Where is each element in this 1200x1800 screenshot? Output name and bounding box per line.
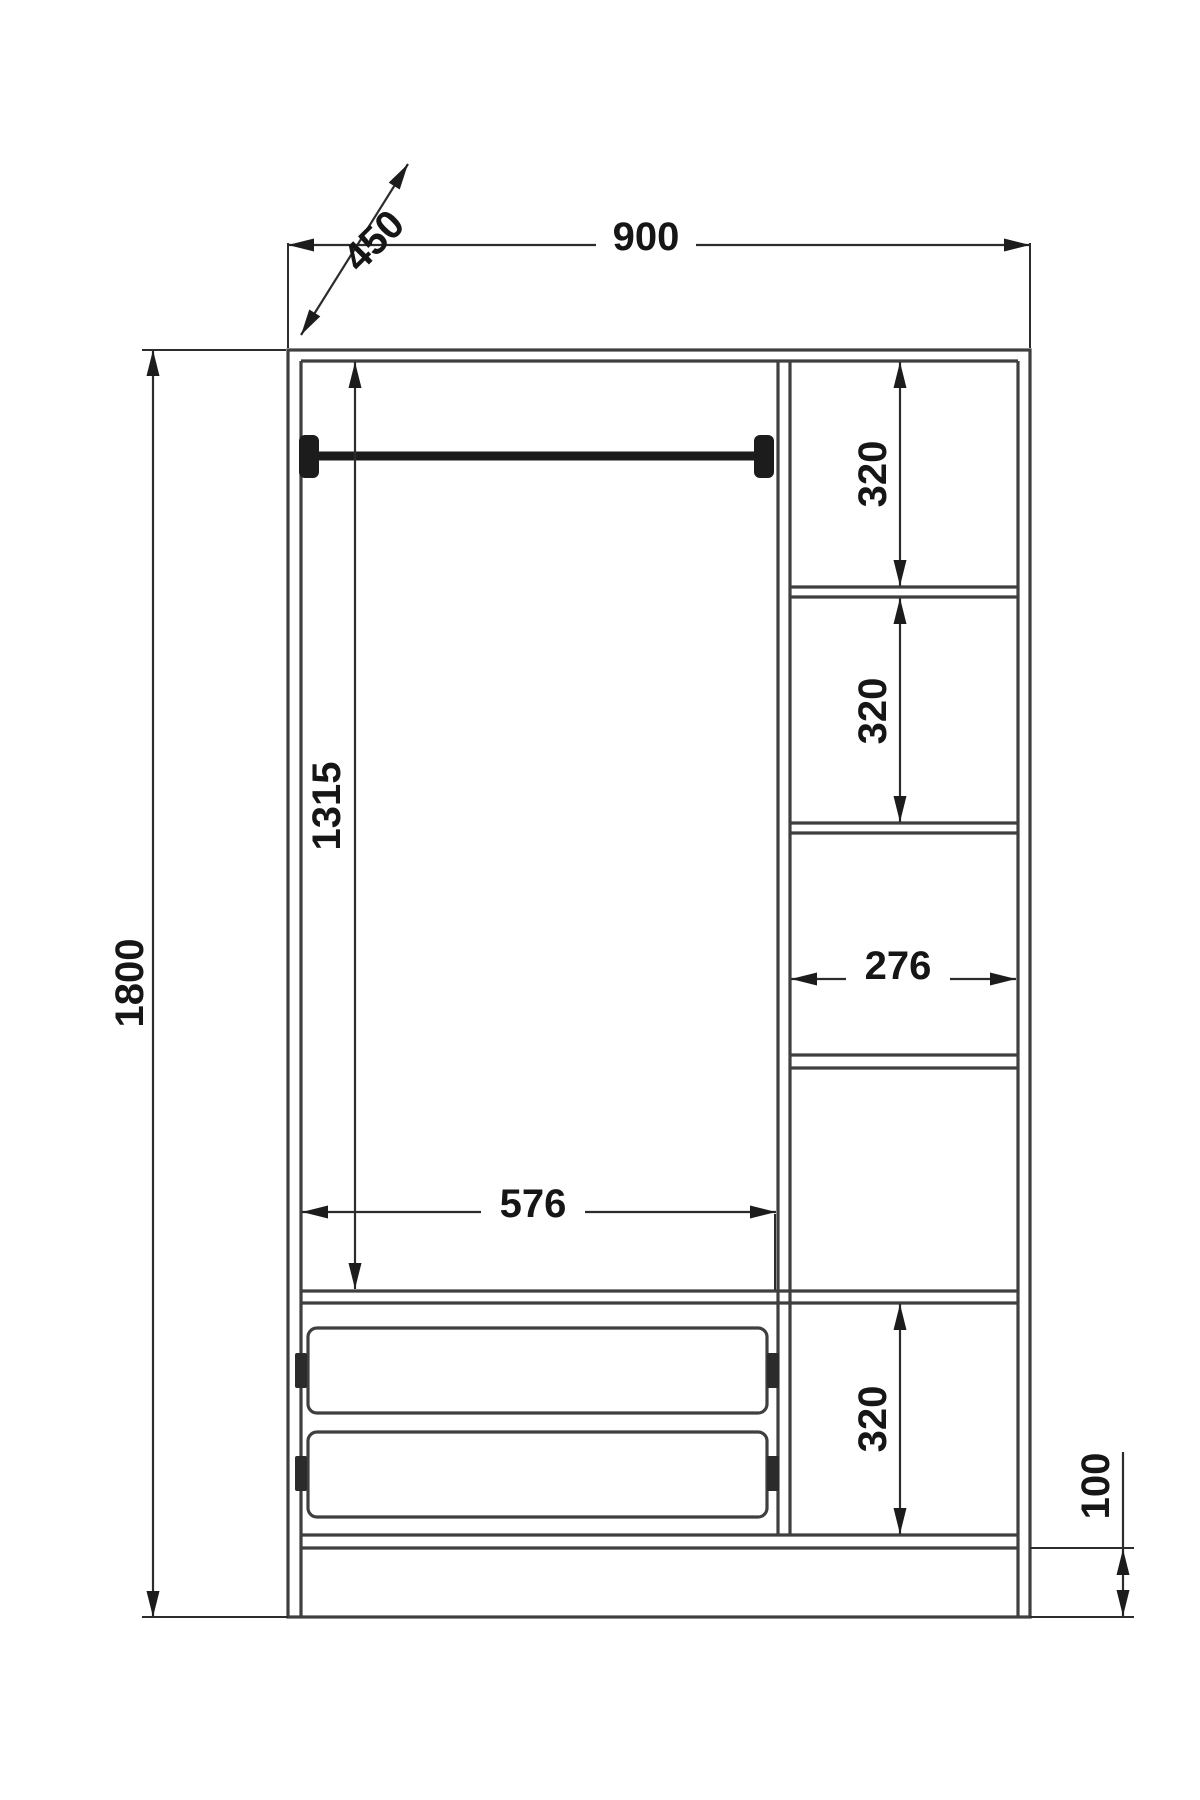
dim-label-overall-width: 900: [613, 215, 680, 259]
dim-label-shelf-gap-top: 320: [851, 441, 895, 508]
dim-label-side-shelf-width: 276: [865, 944, 932, 988]
dim-label-overall-height: 1800: [108, 939, 152, 1028]
drawer-2-left-slide: [295, 1456, 307, 1491]
dim-label-interior-height: 1315: [305, 762, 349, 851]
drawer-1-left-slide: [295, 1353, 307, 1388]
drawer-section: [295, 1328, 779, 1517]
wardrobe-dimension-drawing: 900 450 1800 1315 576 276 320 320 320 10…: [0, 0, 1200, 1800]
drawer-2-front: [308, 1432, 767, 1517]
dim-label-shelf-gap-bottom: 320: [851, 1386, 895, 1453]
technical-drawing-page: 900 450 1800 1315 576 276 320 320 320 10…: [0, 0, 1200, 1800]
rod-bracket-right: [754, 435, 774, 478]
dim-label-depth: 450: [335, 202, 413, 280]
rod-bracket-left: [299, 435, 319, 478]
dim-label-shelf-gap-middle: 320: [851, 678, 895, 745]
dim-label-plinth-height: 100: [1074, 1453, 1118, 1520]
drawer-1-front: [308, 1328, 767, 1413]
drawer-2-right-slide: [767, 1456, 779, 1491]
dim-label-interior-width: 576: [500, 1182, 567, 1226]
hanging-rod-assembly: [299, 435, 774, 478]
drawer-1-right-slide: [767, 1353, 779, 1388]
